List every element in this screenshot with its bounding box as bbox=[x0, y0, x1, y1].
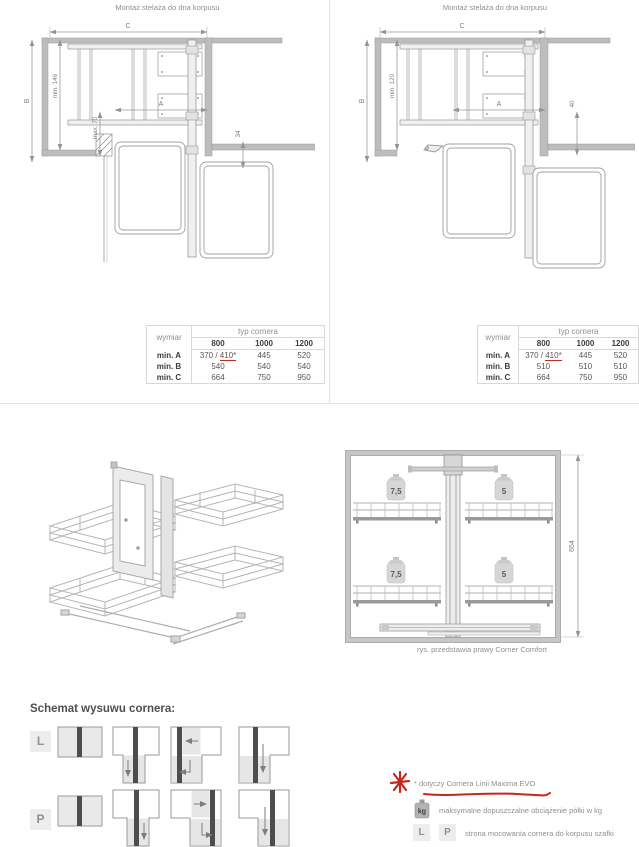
post-top-block bbox=[444, 455, 462, 475]
col-header-1000: 1000 bbox=[568, 338, 603, 350]
panel-divider-vertical bbox=[329, 0, 330, 403]
row-label-min-c: min. C bbox=[147, 372, 192, 384]
corner-unit-isometric-drawing bbox=[25, 448, 305, 648]
post-bracket-bar bbox=[410, 467, 496, 471]
table-cell: 445 bbox=[568, 350, 603, 362]
left-spec-table: wymiar typ cornera 800 1000 1200 min. A … bbox=[146, 325, 325, 384]
dim-label-front: 34 bbox=[235, 130, 242, 138]
instruction-page: Montaż stelaża do dna korpusu C B bbox=[0, 0, 639, 847]
row-label-min-a: min. A bbox=[147, 350, 192, 362]
center-post bbox=[446, 455, 460, 637]
table-cell: 664 bbox=[519, 372, 568, 384]
frame-profiles bbox=[407, 49, 469, 120]
section-divider-horizontal bbox=[0, 403, 639, 404]
legend-l-badge: L bbox=[413, 824, 430, 841]
sequence-l-step-2 bbox=[112, 726, 160, 784]
col-header-1200: 1200 bbox=[603, 338, 639, 350]
value-plain: 370 / bbox=[525, 351, 545, 360]
table-corner-label: wymiar bbox=[147, 326, 192, 350]
right-spec-table: wymiar typ cornera 800 1000 1200 min. A … bbox=[477, 325, 639, 384]
table-cell: 510 bbox=[519, 361, 568, 372]
col-header-800: 800 bbox=[519, 338, 568, 350]
svg-text:kg: kg bbox=[418, 809, 426, 816]
load-label: 5 bbox=[502, 487, 507, 496]
value-plain: 370 / bbox=[200, 351, 220, 360]
sequence-l-step-3 bbox=[170, 726, 222, 784]
sequence-l-step-4 bbox=[238, 726, 290, 784]
dim-label-min146: min. 146 bbox=[52, 73, 59, 98]
table-cell: 520 bbox=[603, 350, 639, 362]
legend-p-badge: P bbox=[439, 824, 456, 841]
frame-post bbox=[525, 40, 533, 258]
left-drawing-title: Montaż stelaża do dna korpusu bbox=[20, 3, 315, 12]
col-header-1200: 1200 bbox=[284, 338, 325, 350]
dim-label-b: B bbox=[24, 98, 31, 103]
table-group-header: typ cornera bbox=[519, 326, 639, 338]
table-row: min. B 540 540 540 bbox=[147, 361, 325, 372]
red-star-mark-icon bbox=[388, 770, 412, 794]
legend-note: * dotyczy Cornera Linii Maxima EVO bbox=[414, 779, 535, 788]
table-cell: 750 bbox=[244, 372, 284, 384]
sequence-p-step-3 bbox=[170, 789, 222, 847]
load-label: 7,5 bbox=[390, 570, 402, 579]
row-label-min-b: min. B bbox=[147, 361, 192, 372]
row-label-right: P bbox=[30, 809, 51, 830]
table-cell: 540 bbox=[244, 361, 284, 372]
basket-lower-left bbox=[50, 565, 175, 616]
table-cell: 950 bbox=[284, 372, 325, 384]
dim-label-front: 40 bbox=[569, 100, 576, 108]
front-view-caption: rys. przedstawia prawy Corner Comfort bbox=[332, 645, 632, 654]
sequence-p-step-2 bbox=[112, 789, 160, 847]
table-cell: 370 / 410* bbox=[192, 350, 245, 362]
right-mounting-plan-drawing: C B A min. bbox=[355, 16, 635, 316]
door-panels bbox=[443, 144, 605, 268]
schemat-heading: Schemat wysuwu cornera: bbox=[30, 703, 175, 715]
frame-profiles bbox=[78, 49, 146, 120]
basket-lower-right bbox=[175, 546, 283, 588]
load-label: 5 bbox=[502, 570, 507, 579]
dim-label-a: A bbox=[159, 101, 164, 108]
table-row: min. A 370 / 410* 445 520 bbox=[478, 350, 639, 362]
dim-label-b: B bbox=[359, 98, 366, 103]
table-cell: 540 bbox=[192, 361, 245, 372]
table-corner-label: wymiar bbox=[478, 326, 519, 350]
row-label-min-c: min. C bbox=[478, 372, 519, 384]
row-label-left: L bbox=[30, 731, 51, 752]
dim-label-c: C bbox=[459, 23, 464, 30]
row-label-min-a: min. A bbox=[478, 350, 519, 362]
basket-upper-right bbox=[175, 484, 283, 526]
sequence-p-step-1 bbox=[57, 795, 103, 827]
right-drawing-title: Montaż stelaża do dna korpusu bbox=[355, 3, 635, 12]
row-label-min-b: min. B bbox=[478, 361, 519, 372]
table-cell: 664 bbox=[192, 372, 245, 384]
table-cell: 445 bbox=[244, 350, 284, 362]
legend-kg-text: maksymalne dopuszczalne obciążenie półki… bbox=[439, 806, 602, 815]
table-cell: 510 bbox=[568, 361, 603, 372]
dim-label-a: A bbox=[497, 101, 502, 108]
dim-label-654: 654 bbox=[569, 540, 576, 552]
front-view-drawing: 7,5 5 7,5 5 654 bbox=[332, 443, 632, 648]
table-row: min. A 370 / 410* 445 520 bbox=[147, 350, 325, 362]
legend-lp-text: strona mocowania cornera do korpusu szaf… bbox=[465, 829, 614, 838]
dim-label-c: C bbox=[125, 23, 130, 30]
sequence-p-step-4 bbox=[238, 789, 290, 847]
value-marked: 410* bbox=[545, 351, 561, 361]
kg-weight-icon: kg bbox=[414, 799, 430, 819]
left-mounting-plan-drawing: C B bbox=[20, 16, 315, 316]
table-cell: 750 bbox=[568, 372, 603, 384]
value-marked: 410* bbox=[220, 351, 236, 361]
col-header-1000: 1000 bbox=[244, 338, 284, 350]
hinge-lever bbox=[424, 145, 443, 152]
sequence-l-step-1 bbox=[57, 726, 103, 758]
dim-label-max70: max. 70 bbox=[92, 116, 99, 139]
table-cell: 370 / 410* bbox=[519, 350, 568, 362]
table-cell: 520 bbox=[284, 350, 325, 362]
table-cell: 950 bbox=[603, 372, 639, 384]
red-underline-mark bbox=[422, 790, 552, 797]
table-group-header: typ cornera bbox=[192, 326, 325, 338]
col-header-800: 800 bbox=[192, 338, 245, 350]
table-row: min. C 664 750 950 bbox=[147, 372, 325, 384]
table-row: min. B 510 510 510 bbox=[478, 361, 639, 372]
dim-label-min120: min. 120 bbox=[389, 73, 396, 98]
mounting-plates bbox=[483, 52, 529, 118]
table-cell: 510 bbox=[603, 361, 639, 372]
table-cell: 540 bbox=[284, 361, 325, 372]
load-label: 7,5 bbox=[390, 487, 402, 496]
table-row: min. C 664 750 950 bbox=[478, 372, 639, 384]
